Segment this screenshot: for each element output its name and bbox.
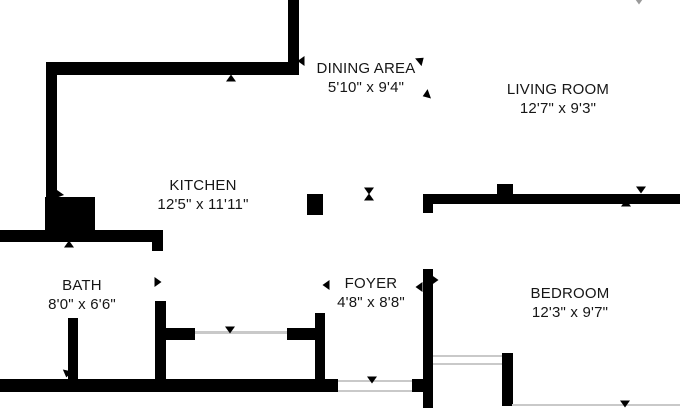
room-label-living-room: LIVING ROOM 12'7" x 9'3" xyxy=(507,80,609,118)
room-name: LIVING ROOM xyxy=(507,80,609,99)
floor-plan: DINING AREA 5'10" x 9'4" LIVING ROOM 12'… xyxy=(0,0,680,408)
room-label-bedroom: BEDROOM 12'3" x 9'7" xyxy=(531,284,610,322)
room-dimensions: 12'3" x 9'7" xyxy=(531,303,610,322)
room-name: DINING AREA xyxy=(317,59,416,78)
room-label-dining-area: DINING AREA 5'10" x 9'4" xyxy=(317,59,416,97)
room-name: FOYER xyxy=(337,274,405,293)
room-name: KITCHEN xyxy=(157,176,248,195)
room-dimensions: 12'5" x 11'11" xyxy=(157,195,248,214)
room-label-kitchen: KITCHEN 12'5" x 11'11" xyxy=(157,176,248,214)
room-name: BEDROOM xyxy=(531,284,610,303)
room-name: BATH xyxy=(48,276,116,295)
room-dimensions: 12'7" x 9'3" xyxy=(507,99,609,118)
room-label-bath: BATH 8'0" x 6'6" xyxy=(48,276,116,314)
labels-layer: DINING AREA 5'10" x 9'4" LIVING ROOM 12'… xyxy=(0,0,680,408)
room-label-foyer: FOYER 4'8" x 8'8" xyxy=(337,274,405,312)
room-dimensions: 5'10" x 9'4" xyxy=(317,78,416,97)
room-dimensions: 4'8" x 8'8" xyxy=(337,293,405,312)
room-dimensions: 8'0" x 6'6" xyxy=(48,295,116,314)
